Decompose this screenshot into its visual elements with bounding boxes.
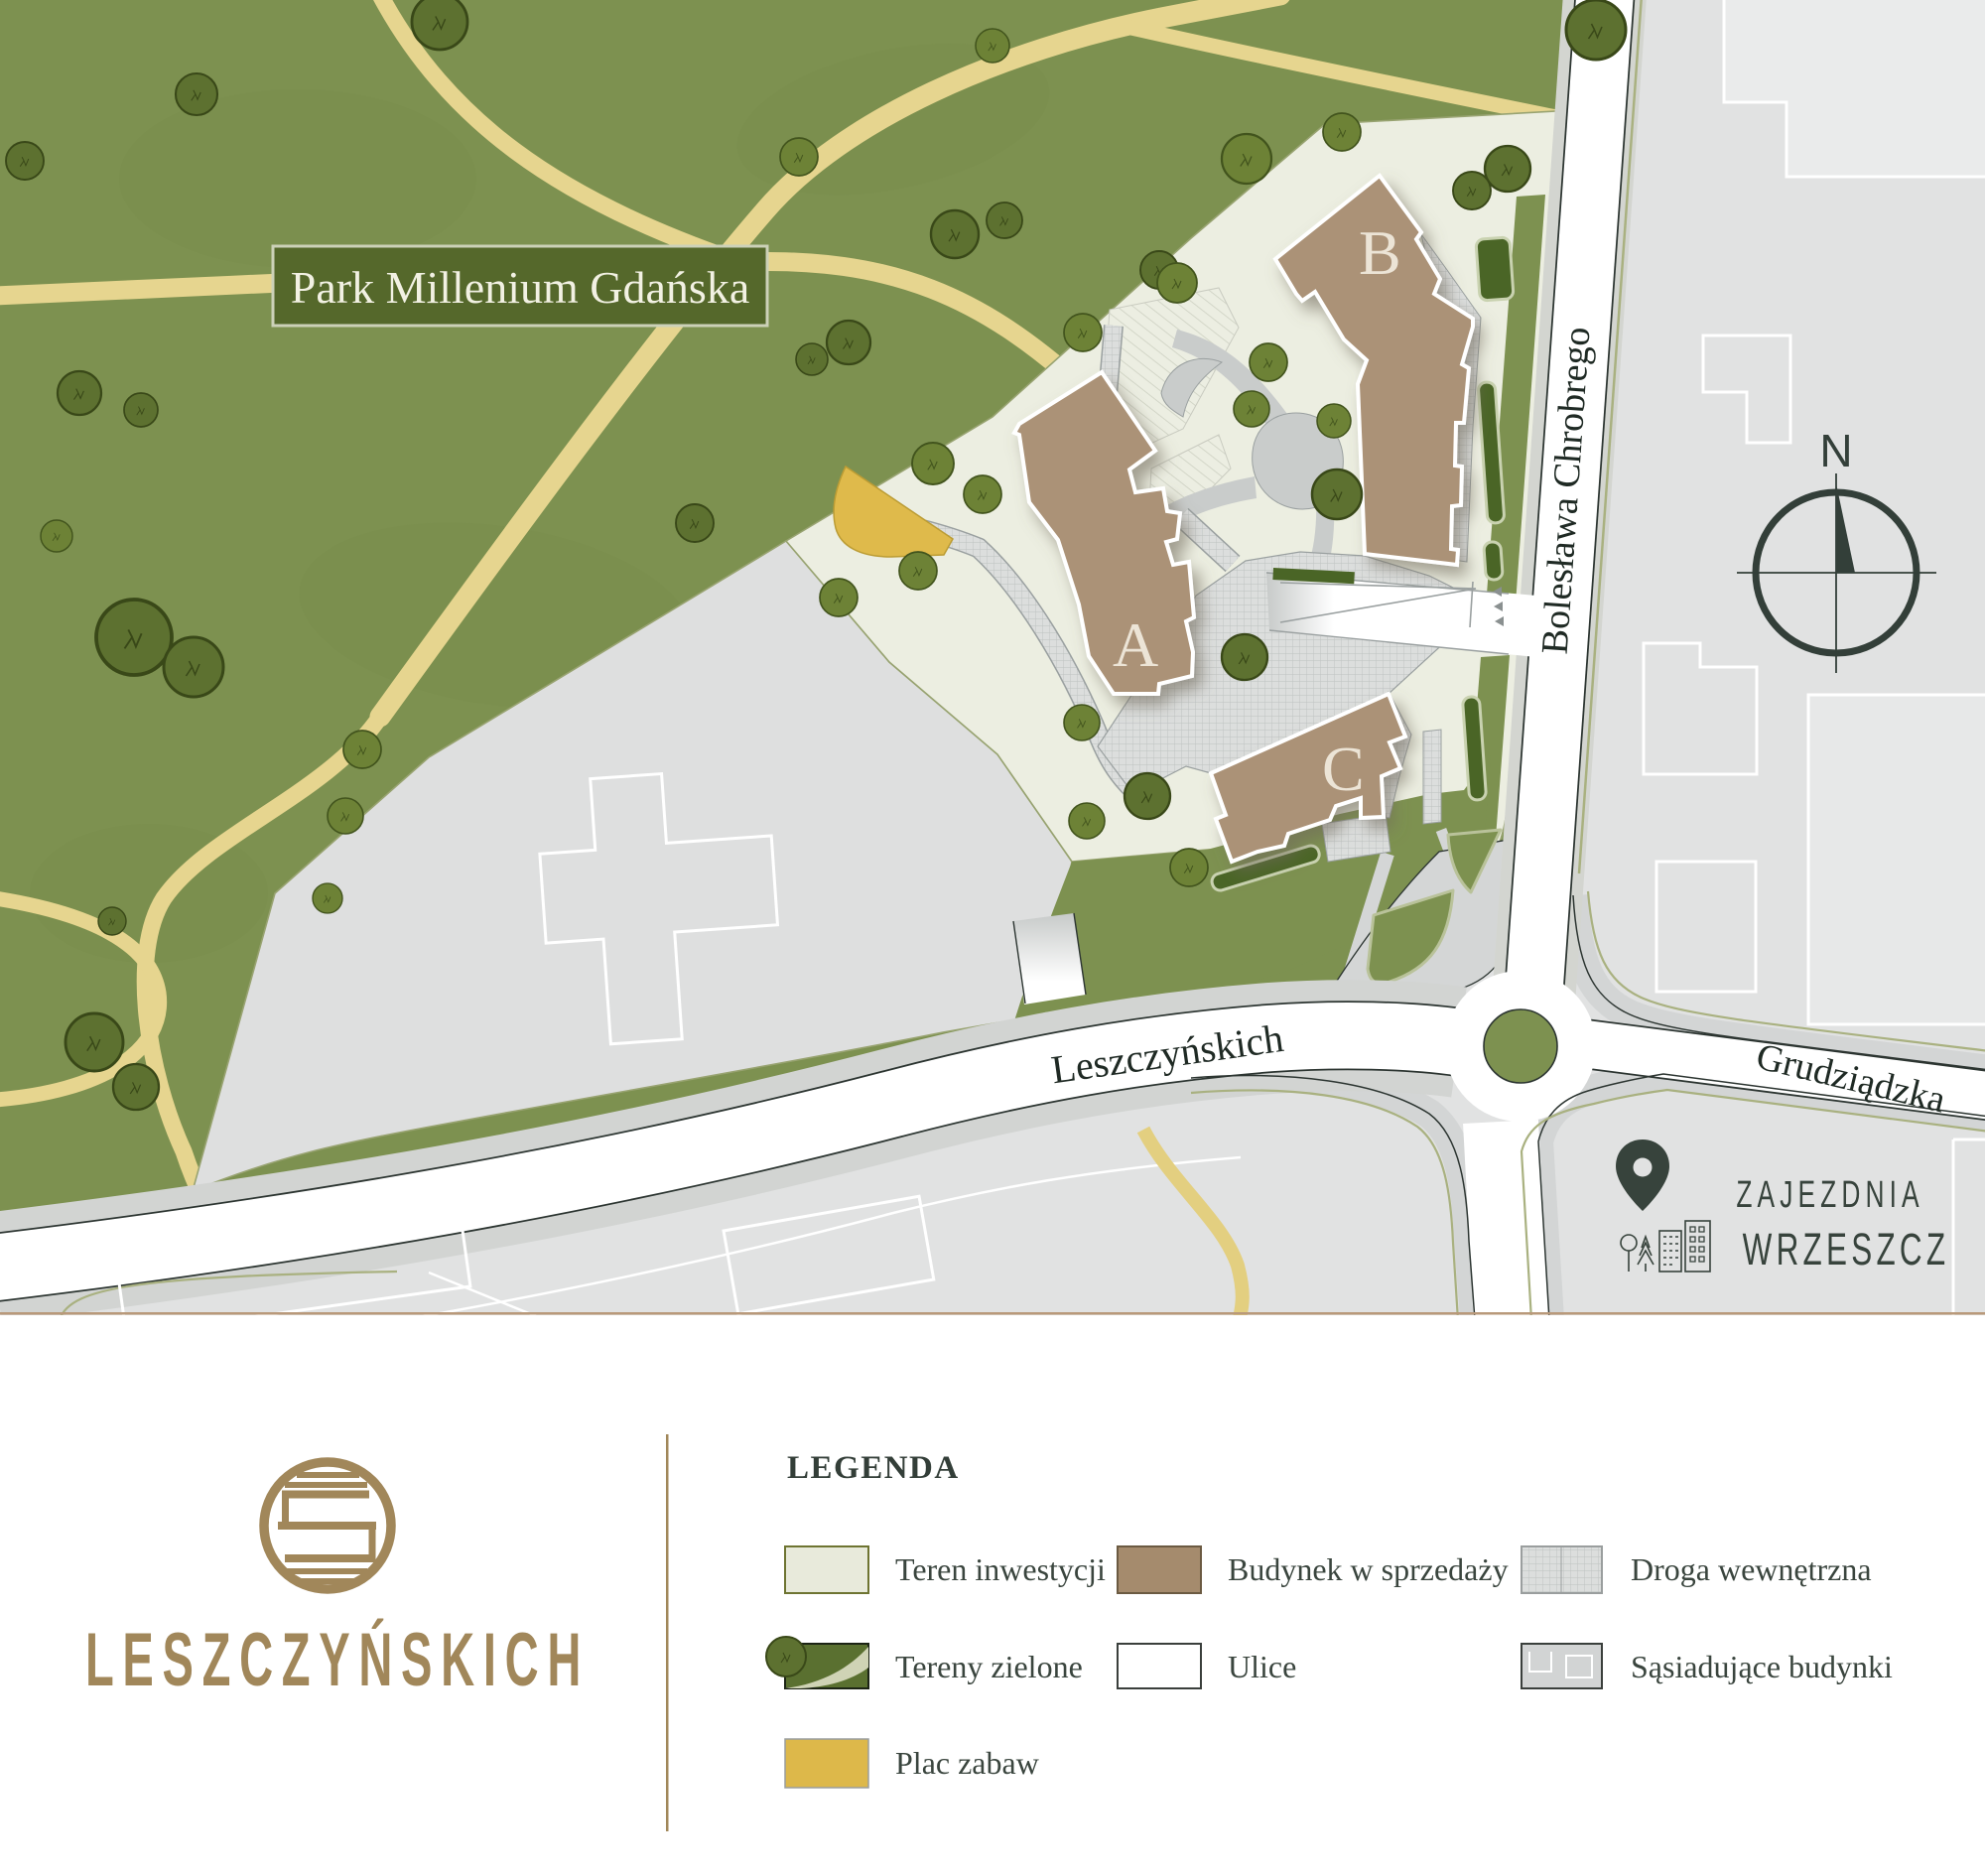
svg-text:Plac zabaw: Plac zabaw [895, 1745, 1039, 1781]
svg-text:WRZESZCZ: WRZESZCZ [1743, 1226, 1950, 1275]
svg-text:Droga wewnętrzna: Droga wewnętrzna [1631, 1551, 1872, 1587]
svg-text:B: B [1359, 217, 1401, 288]
svg-text:Teren inwestycji: Teren inwestycji [895, 1551, 1106, 1587]
svg-text:Sąsiadujące budynki: Sąsiadujące budynki [1631, 1649, 1893, 1684]
svg-text:Ulice: Ulice [1228, 1649, 1296, 1684]
svg-text:ZAJEZDNIA: ZAJEZDNIA [1736, 1172, 1923, 1215]
svg-text:C: C [1322, 734, 1365, 804]
svg-text:Tereny zielone: Tereny zielone [895, 1649, 1083, 1684]
svg-text:LESZCZYŃSKICH: LESZCZYŃSKICH [85, 1619, 590, 1702]
svg-text:N: N [1819, 425, 1852, 476]
svg-text:Park Millenium Gdańska: Park Millenium Gdańska [291, 262, 750, 313]
svg-text:Budynek w sprzedaży: Budynek w sprzedaży [1228, 1551, 1509, 1587]
svg-text:A: A [1113, 609, 1158, 680]
svg-text:LEGENDA: LEGENDA [787, 1450, 960, 1486]
